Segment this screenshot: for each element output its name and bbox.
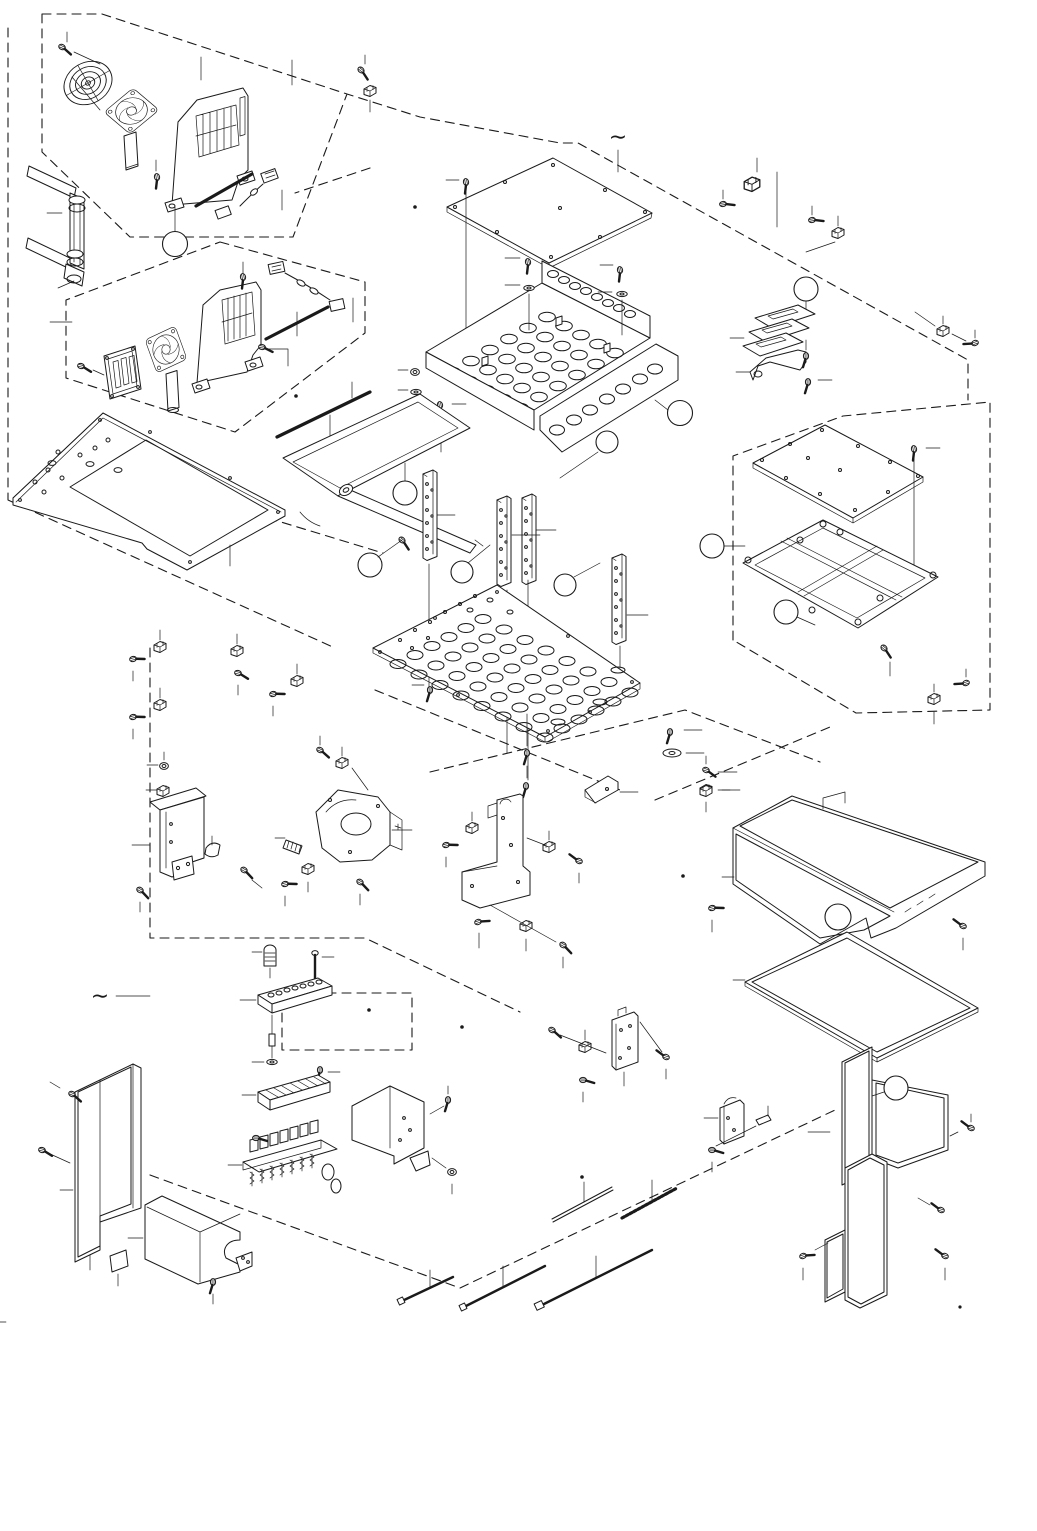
upper-right-clips xyxy=(719,158,979,349)
center-bracket-group xyxy=(275,736,412,906)
plate-bracket xyxy=(612,1007,638,1086)
busbar-foot-bracket xyxy=(736,350,806,380)
clip-icon xyxy=(291,676,303,687)
screw-icon xyxy=(523,783,529,798)
screw-icon xyxy=(934,1249,950,1259)
silencer-cartridge xyxy=(252,945,276,978)
cable-clip-sets xyxy=(129,630,303,739)
screw-icon xyxy=(709,1147,724,1153)
screw-icon xyxy=(799,1250,815,1260)
washer-icon xyxy=(617,291,627,296)
perforated-cover-large xyxy=(700,786,985,951)
fan-guard-plate xyxy=(104,346,141,399)
callout-balloon xyxy=(825,904,851,930)
screw-icon xyxy=(356,66,371,80)
fan-guard-icon xyxy=(56,53,120,114)
support-post xyxy=(522,494,536,585)
mounting-tray-bracket xyxy=(283,382,483,553)
u-cover-bracket xyxy=(110,1196,252,1304)
screw-icon xyxy=(616,266,624,281)
screw-icon xyxy=(77,363,93,372)
perforated-sheet xyxy=(733,932,978,1062)
clip-icon xyxy=(466,823,478,834)
center-bottom-bracket xyxy=(442,756,740,968)
vented-bracket xyxy=(165,88,255,212)
lower-left-bracket-group xyxy=(132,752,262,912)
perforated-duct-tower xyxy=(799,1047,975,1308)
board-frame-assembly xyxy=(700,425,970,724)
screw-icon xyxy=(667,729,673,744)
callout-balloon xyxy=(554,574,576,596)
screw-icon xyxy=(474,916,490,926)
screw-icon xyxy=(879,644,894,658)
exploded-parts-diagram-page: ∼ ∼ xyxy=(0,0,1037,1531)
saddle-clamp xyxy=(205,843,220,857)
pad xyxy=(110,1250,128,1272)
screw-icon xyxy=(808,215,823,223)
screw-icon xyxy=(281,879,297,888)
screw-icon xyxy=(258,344,273,352)
support-post xyxy=(423,470,437,561)
callout-balloon xyxy=(393,481,417,505)
clip-icon xyxy=(928,694,940,705)
screw-icon xyxy=(445,1097,451,1112)
screw-icon xyxy=(708,903,724,912)
valve-manifold-assembly xyxy=(228,945,464,1194)
small-plate-brackets xyxy=(548,1007,771,1172)
screw-icon xyxy=(210,1279,216,1294)
screw-icon xyxy=(129,712,145,721)
callout-balloon xyxy=(774,600,798,624)
nut-icon xyxy=(448,1169,457,1176)
screw-icon xyxy=(580,1077,595,1083)
valve-mounting-bracket xyxy=(352,1086,430,1171)
fan-kit-upper xyxy=(56,32,292,257)
nut-icon xyxy=(411,369,420,376)
side-perforated-panel xyxy=(38,1064,141,1270)
washer-icon xyxy=(524,285,534,290)
screw-icon xyxy=(58,43,74,54)
callout-balloon xyxy=(163,232,188,257)
screw-icon xyxy=(356,878,371,890)
clip-icon xyxy=(154,642,166,653)
clip-icon xyxy=(364,86,376,97)
fan-icon xyxy=(145,326,187,373)
clip-icon xyxy=(520,921,532,932)
angled-bracket xyxy=(585,776,638,803)
clip-icon xyxy=(832,228,844,239)
screw-icon xyxy=(805,379,811,394)
solenoid-valve-bank xyxy=(228,1120,341,1193)
screw-icon xyxy=(655,1050,671,1060)
callout-balloon xyxy=(884,1076,908,1100)
screw-icon xyxy=(952,919,968,929)
clip-icon xyxy=(154,700,166,711)
screw-icon xyxy=(462,178,470,193)
screw-icon xyxy=(719,199,734,207)
vented-bracket xyxy=(192,282,263,393)
top-fastener-set xyxy=(356,55,376,112)
continuation-mark: ∼ xyxy=(91,984,109,1009)
screw-icon xyxy=(524,258,532,273)
cross-frame xyxy=(743,520,938,628)
foot-bracket xyxy=(462,794,530,908)
u-bracket xyxy=(316,790,402,862)
fan-icon xyxy=(104,88,159,134)
washer-icon xyxy=(267,1059,277,1064)
clip-icon xyxy=(302,864,314,875)
screw-icon xyxy=(954,679,970,689)
reference-dots xyxy=(0,1305,962,1322)
exploded-parts-diagram: ∼ ∼ xyxy=(0,0,1037,1531)
spacer xyxy=(269,1034,275,1046)
plate-bracket xyxy=(704,1098,744,1144)
support-post xyxy=(612,554,626,645)
nut-icon xyxy=(160,763,169,770)
screw-icon xyxy=(136,886,151,898)
callout-balloon xyxy=(668,401,693,426)
screw-icon xyxy=(960,1121,976,1131)
pin xyxy=(756,1115,771,1125)
cable-ties-and-rods xyxy=(397,1175,677,1311)
callout-balloon xyxy=(700,534,724,558)
clip-icon xyxy=(744,177,760,191)
screw-icon xyxy=(427,687,433,702)
screw-icon xyxy=(548,1026,564,1037)
spring-pin xyxy=(275,838,302,854)
clip-icon xyxy=(231,646,243,657)
tall-bracket xyxy=(132,788,206,880)
continuation-mark: ∼ xyxy=(609,125,627,150)
perforated-base-plate xyxy=(373,585,704,797)
screw-icon xyxy=(910,445,918,460)
manifold-rail xyxy=(240,978,332,1013)
screw-icon xyxy=(129,654,145,663)
screw-icon xyxy=(240,866,255,878)
cable-assembly xyxy=(268,261,353,322)
terminal-block xyxy=(242,1075,330,1110)
screw-icon xyxy=(442,840,458,849)
callout-balloon xyxy=(451,561,473,583)
screw-icon xyxy=(568,854,584,864)
perforated-component-tray xyxy=(398,258,693,478)
screw-icon xyxy=(397,536,412,550)
callout-balloon xyxy=(596,431,618,453)
screw-icon xyxy=(524,750,530,765)
screw-icon xyxy=(269,689,285,698)
clip-icon xyxy=(157,786,169,797)
screw-icon xyxy=(559,941,574,953)
busbar-plate-stack xyxy=(730,277,832,393)
support-post xyxy=(497,496,511,587)
screw-icon xyxy=(930,1203,946,1213)
clip-icon xyxy=(543,842,555,853)
left-perforated-plate xyxy=(13,413,285,570)
screw-icon xyxy=(234,670,250,679)
screw-icon xyxy=(316,746,332,757)
callout-balloon xyxy=(794,277,818,301)
clip-icon xyxy=(937,326,949,337)
clip-icon xyxy=(336,758,348,769)
screw-icon xyxy=(702,766,718,776)
screw-icon xyxy=(153,173,161,188)
